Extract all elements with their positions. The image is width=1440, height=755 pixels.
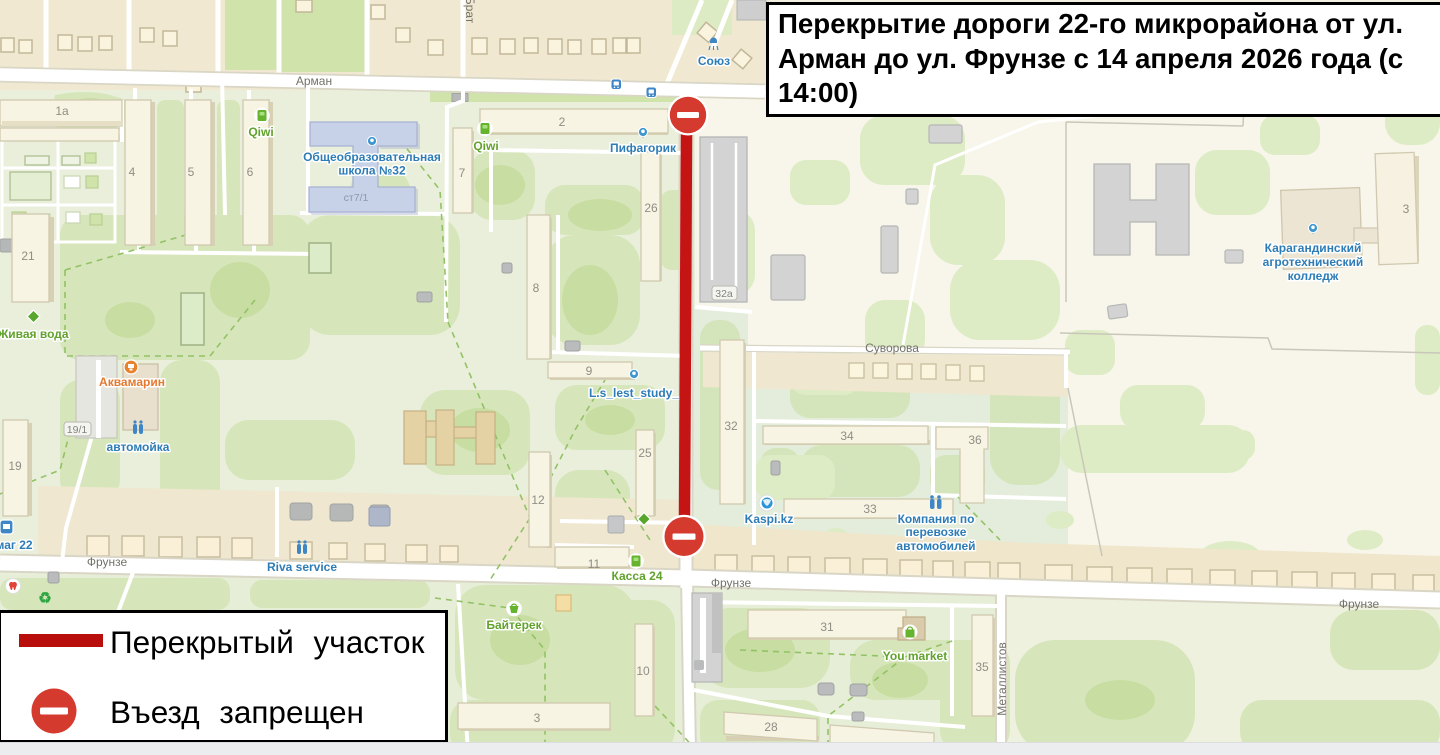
svg-text:автомобилей: автомобилей <box>896 539 975 553</box>
svg-text:33: 33 <box>863 502 877 516</box>
svg-text:Карагандинский: Карагандинский <box>1265 241 1362 255</box>
svg-text:8: 8 <box>533 281 540 295</box>
svg-text:3: 3 <box>1403 202 1410 216</box>
svg-text:агротехнический: агротехнический <box>1263 255 1364 269</box>
svg-text:10: 10 <box>636 664 650 678</box>
svg-text:Qiwi: Qiwi <box>248 125 273 139</box>
svg-text:перевозке: перевозке <box>906 525 967 539</box>
svg-text:Общеобразовательная: Общеобразовательная <box>303 150 441 164</box>
svg-text:5: 5 <box>188 165 195 179</box>
svg-text:19/1: 19/1 <box>67 424 88 436</box>
svg-text:34: 34 <box>840 429 854 443</box>
svg-text:6: 6 <box>247 165 254 179</box>
svg-text:Арман: Арман <box>296 74 332 88</box>
svg-text:12: 12 <box>531 493 545 507</box>
svg-text:автомойка: автомойка <box>107 440 170 454</box>
svg-text:колледж: колледж <box>1288 269 1339 283</box>
svg-text:36: 36 <box>968 433 982 447</box>
svg-text:32: 32 <box>724 419 738 433</box>
svg-text:25: 25 <box>638 446 652 460</box>
svg-text:Пифагорик: Пифагорик <box>610 141 677 155</box>
svg-text:31: 31 <box>820 620 834 634</box>
svg-text:4: 4 <box>129 165 136 179</box>
svg-text:♻: ♻ <box>38 590 51 607</box>
svg-text:Брат: Брат <box>463 0 477 24</box>
svg-text:Фрунзе: Фрунзе <box>711 576 752 590</box>
svg-text:Касса 24: Касса 24 <box>612 569 663 583</box>
svg-text:3: 3 <box>534 711 541 725</box>
svg-text:Живая вода: Живая вода <box>0 327 69 341</box>
svg-text:28: 28 <box>764 720 778 734</box>
svg-text:11: 11 <box>588 557 601 571</box>
svg-text:Qiwi: Qiwi <box>473 139 498 153</box>
svg-text:19: 19 <box>8 459 22 473</box>
svg-text:Kaspi.kz: Kaspi.kz <box>745 512 794 526</box>
svg-text:маг 22: маг 22 <box>0 538 33 552</box>
svg-text:Байтерек: Байтерек <box>486 618 542 632</box>
svg-text:Riva service: Riva service <box>267 560 337 574</box>
svg-text:9: 9 <box>586 364 593 378</box>
svg-text:35: 35 <box>975 660 989 674</box>
svg-text:1а: 1а <box>55 104 69 118</box>
svg-text:школа №32: школа №32 <box>338 164 406 178</box>
svg-text:21: 21 <box>21 249 35 263</box>
svg-text:26: 26 <box>644 201 658 215</box>
svg-text:Компания по: Компания по <box>898 512 975 526</box>
svg-text:Фрунзе: Фрунзе <box>1339 597 1380 611</box>
svg-text:32а: 32а <box>715 288 733 300</box>
svg-text:Аквамарин: Аквамарин <box>99 375 165 389</box>
svg-text:Союз: Союз <box>698 54 730 68</box>
svg-text:L.s_lest_study_: L.s_lest_study_ <box>589 386 679 400</box>
svg-text:ст7/1: ст7/1 <box>344 192 369 204</box>
svg-text:You market: You market <box>883 649 947 663</box>
svg-text:7: 7 <box>459 166 466 180</box>
svg-text:2: 2 <box>559 115 566 129</box>
svg-text:Металлистов: Металлистов <box>995 642 1009 716</box>
svg-text:Фрунзе: Фрунзе <box>87 555 128 569</box>
svg-text:Суворова: Суворова <box>865 341 919 355</box>
